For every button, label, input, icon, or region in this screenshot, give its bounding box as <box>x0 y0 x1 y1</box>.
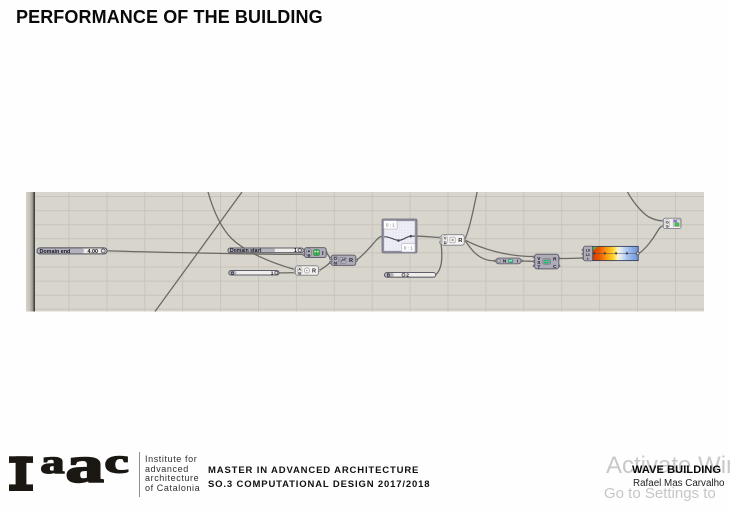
svg-text:0 : 1: 0 : 1 <box>404 246 413 251</box>
svg-text:1: 1 <box>294 248 297 254</box>
svg-text:D: D <box>444 241 447 245</box>
svg-text:B: B <box>231 270 234 275</box>
svg-text:N: N <box>334 260 337 265</box>
svg-text:a: a <box>41 450 65 480</box>
svg-text:1: 1 <box>271 270 274 276</box>
svg-text:C: C <box>553 264 557 270</box>
svg-text:R: R <box>349 258 353 264</box>
svg-text:S: S <box>666 224 669 229</box>
svg-text:4.00: 4.00 <box>88 249 99 255</box>
svg-text:I: I <box>517 259 518 264</box>
svg-text:B: B <box>387 273 390 278</box>
svg-text:Domain start: Domain start <box>230 248 261 254</box>
svg-text:0 : 1: 0 : 1 <box>386 223 395 228</box>
svg-text:c: c <box>105 450 129 480</box>
svg-text:a: a <box>66 450 104 493</box>
svg-text:B: B <box>298 271 301 275</box>
svg-text:R: R <box>553 256 557 262</box>
svg-text:B: B <box>307 252 310 257</box>
svg-text:2: 2 <box>406 273 409 279</box>
svg-text:Domain end: Domain end <box>40 249 71 255</box>
svg-text:T: T <box>538 265 541 270</box>
svg-text:R: R <box>312 269 316 275</box>
